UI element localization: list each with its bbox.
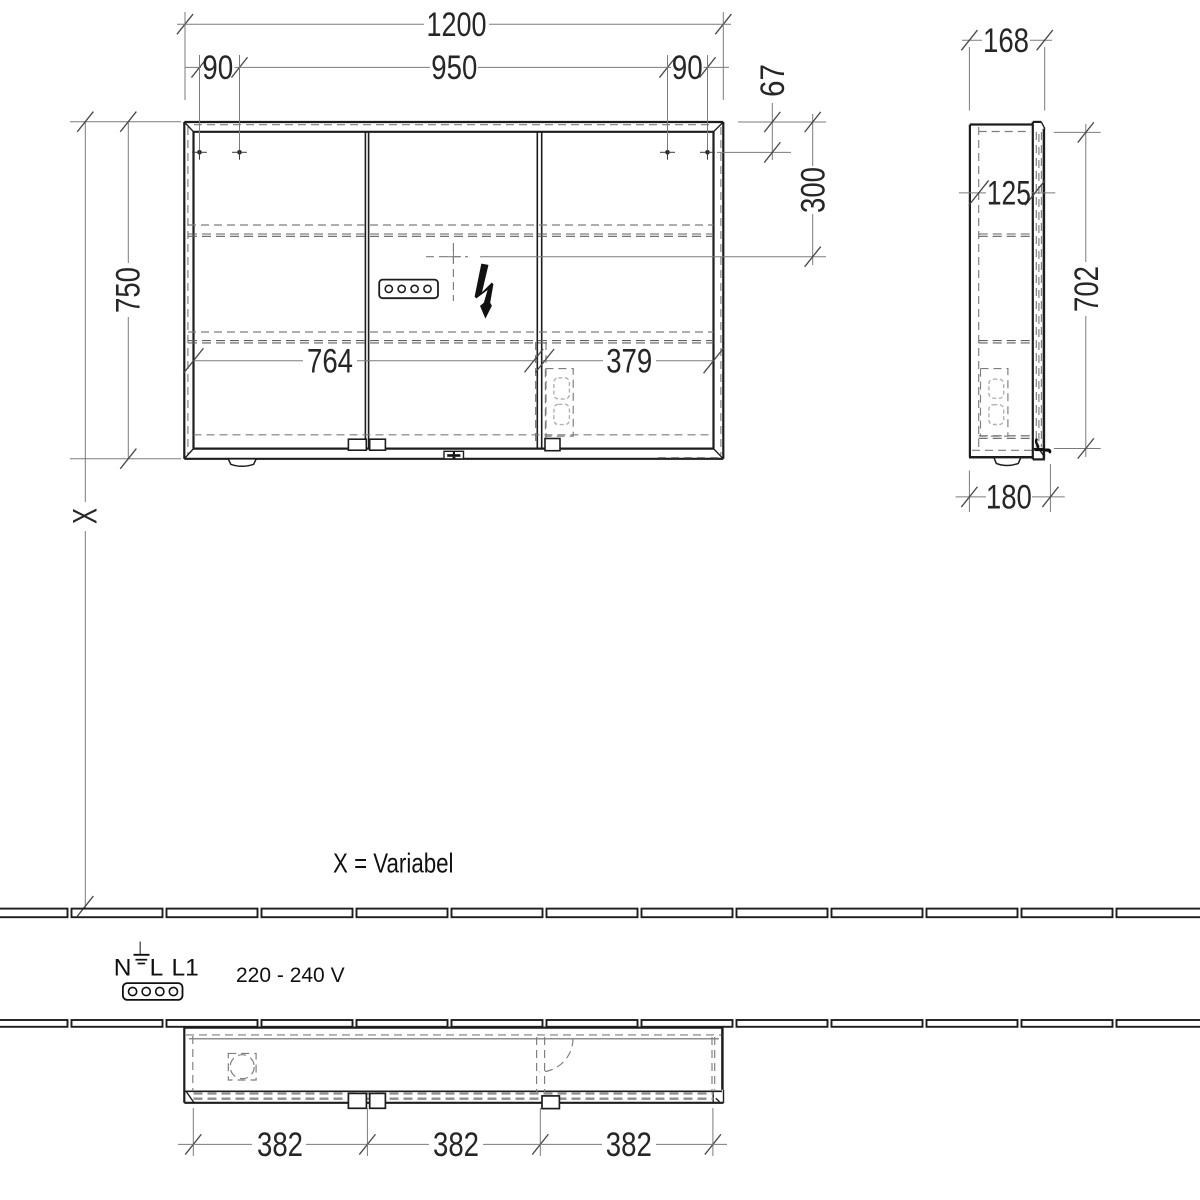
svg-text:379: 379: [606, 342, 652, 380]
svg-text:N: N: [114, 954, 132, 981]
svg-text:1200: 1200: [427, 6, 487, 44]
svg-text:168: 168: [983, 22, 1029, 60]
svg-text:750: 750: [110, 267, 148, 313]
svg-text:X = Variabel: X = Variabel: [333, 847, 454, 878]
svg-text:382: 382: [606, 1126, 652, 1164]
svg-text:67: 67: [754, 64, 792, 97]
svg-text:90: 90: [202, 49, 233, 87]
svg-text:L: L: [150, 954, 164, 981]
svg-text:950: 950: [431, 49, 477, 87]
svg-text:702: 702: [1068, 266, 1106, 312]
svg-text:220 - 240 V: 220 - 240 V: [236, 964, 345, 987]
svg-text:X: X: [67, 508, 105, 524]
svg-text:90: 90: [672, 49, 703, 87]
svg-text:125: 125: [987, 175, 1031, 213]
svg-text:300: 300: [795, 167, 833, 213]
svg-text:L1: L1: [172, 954, 199, 981]
svg-text:382: 382: [433, 1126, 479, 1164]
svg-text:764: 764: [307, 342, 353, 380]
svg-text:382: 382: [257, 1126, 303, 1164]
svg-text:180: 180: [986, 479, 1032, 517]
